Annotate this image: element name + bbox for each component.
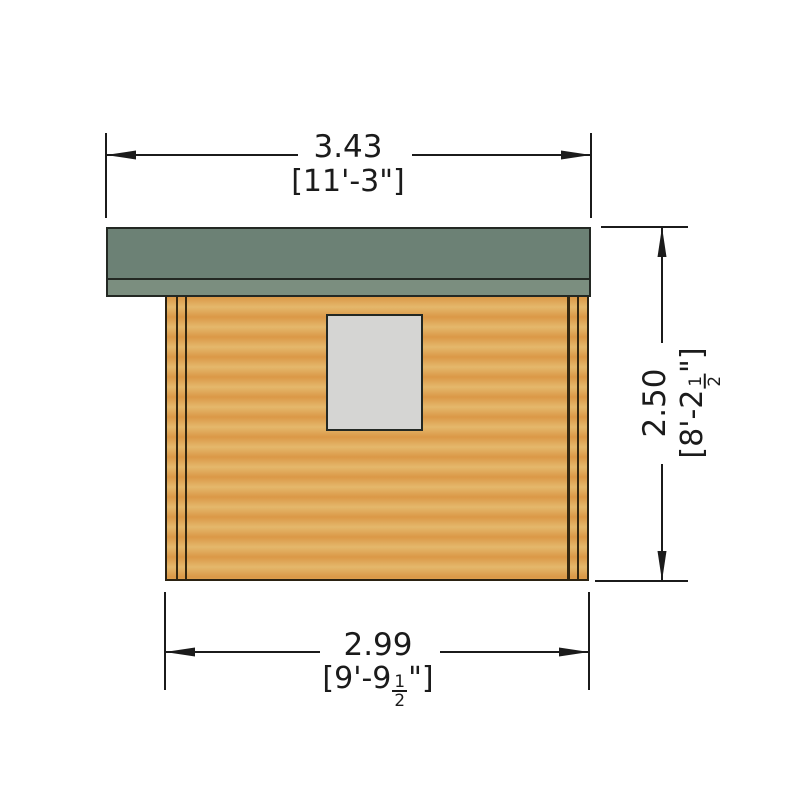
corner-trim-left-line-outer — [176, 297, 178, 579]
fraction: 12 — [392, 673, 407, 709]
window — [326, 314, 423, 431]
corner-trim-right-line-inner — [567, 297, 570, 579]
imperial-suffix: "] — [675, 347, 710, 373]
dim-base-width-imperial: [9'-912"] — [278, 662, 478, 709]
roof-fascia — [108, 278, 589, 295]
corner-trim-left-line-inner — [185, 297, 187, 579]
corner-trim-right-line-outer — [577, 297, 579, 579]
dim-base-width-metric: 2.99 — [278, 628, 478, 662]
shed-side-elevation-diagram: 3.43 [11'-3"] 2.50 [8'-212"] 2.99 [9'-91… — [0, 0, 800, 800]
fraction-denominator: 2 — [392, 692, 407, 709]
fraction: 12 — [687, 374, 723, 389]
imperial-feet-inches: [8'-2 — [675, 390, 710, 459]
shed-roof — [106, 227, 591, 297]
dim-overall-height-imperial: [8'-212"] — [674, 347, 723, 458]
fraction-denominator: 2 — [706, 374, 723, 389]
shed-wall-cladding — [165, 297, 589, 581]
imperial-feet-inches: [9'-9 — [322, 661, 391, 696]
dim-overall-width-metric: 3.43 — [248, 130, 448, 164]
dim-overall-width-imperial: [11'-3"] — [248, 165, 448, 199]
imperial-suffix: "] — [408, 661, 434, 696]
dim-overall-height-label: 2.50 [8'-212"] — [637, 347, 723, 458]
dim-overall-height-metric: 2.50 — [637, 347, 674, 458]
